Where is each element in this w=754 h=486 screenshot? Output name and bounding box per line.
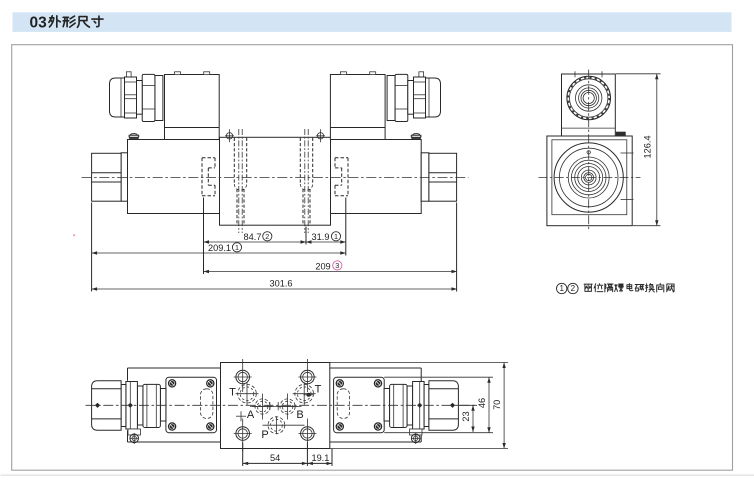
svg-text:126.4: 126.4 [642, 136, 652, 159]
svg-text:T: T [229, 387, 236, 399]
svg-text:03: 03 [30, 15, 48, 32]
svg-text:3: 3 [335, 261, 339, 270]
svg-text:84.7: 84.7 [244, 232, 262, 242]
svg-text:P: P [261, 429, 268, 441]
svg-text:1: 1 [334, 232, 338, 241]
svg-text:A: A [247, 409, 255, 421]
svg-text:31.9: 31.9 [312, 232, 330, 242]
svg-text:54: 54 [270, 453, 280, 463]
svg-text:70: 70 [492, 400, 502, 410]
svg-text:209.1: 209.1 [208, 243, 231, 253]
svg-text:209: 209 [315, 261, 330, 271]
svg-text:19.1: 19.1 [311, 453, 329, 463]
svg-text:1: 1 [559, 284, 564, 293]
svg-text:B: B [296, 409, 303, 421]
svg-text:2: 2 [571, 284, 576, 293]
svg-text:1: 1 [235, 243, 239, 252]
svg-text:301.6: 301.6 [270, 279, 293, 289]
svg-text:2: 2 [265, 232, 269, 241]
svg-text:T: T [315, 384, 322, 396]
svg-text:46: 46 [477, 398, 487, 408]
svg-text:23: 23 [461, 411, 471, 421]
